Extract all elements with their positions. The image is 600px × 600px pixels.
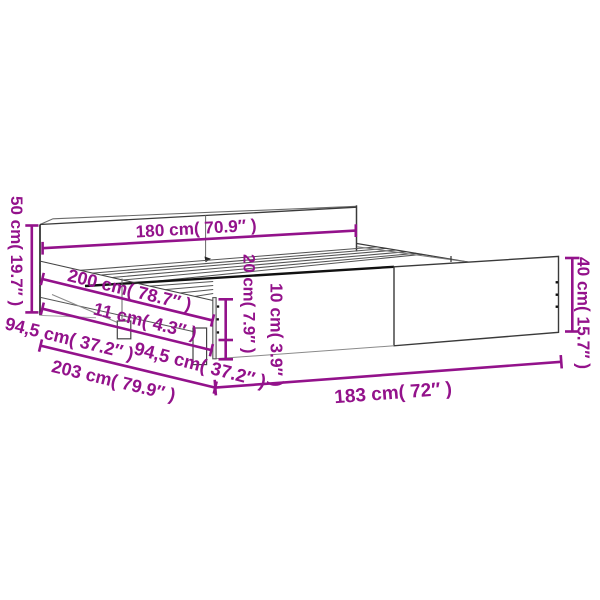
svg-text:40 cm( 15.7″ ): 40 cm( 15.7″ ) <box>574 257 594 369</box>
svg-text:20 cm( 7.9″ ): 20 cm( 7.9″ ) <box>240 254 259 353</box>
svg-text:10 cm( 3.9″ ): 10 cm( 3.9″ ) <box>267 283 287 387</box>
svg-text:50 cm( 19.7″ ): 50 cm( 19.7″ ) <box>7 196 26 306</box>
